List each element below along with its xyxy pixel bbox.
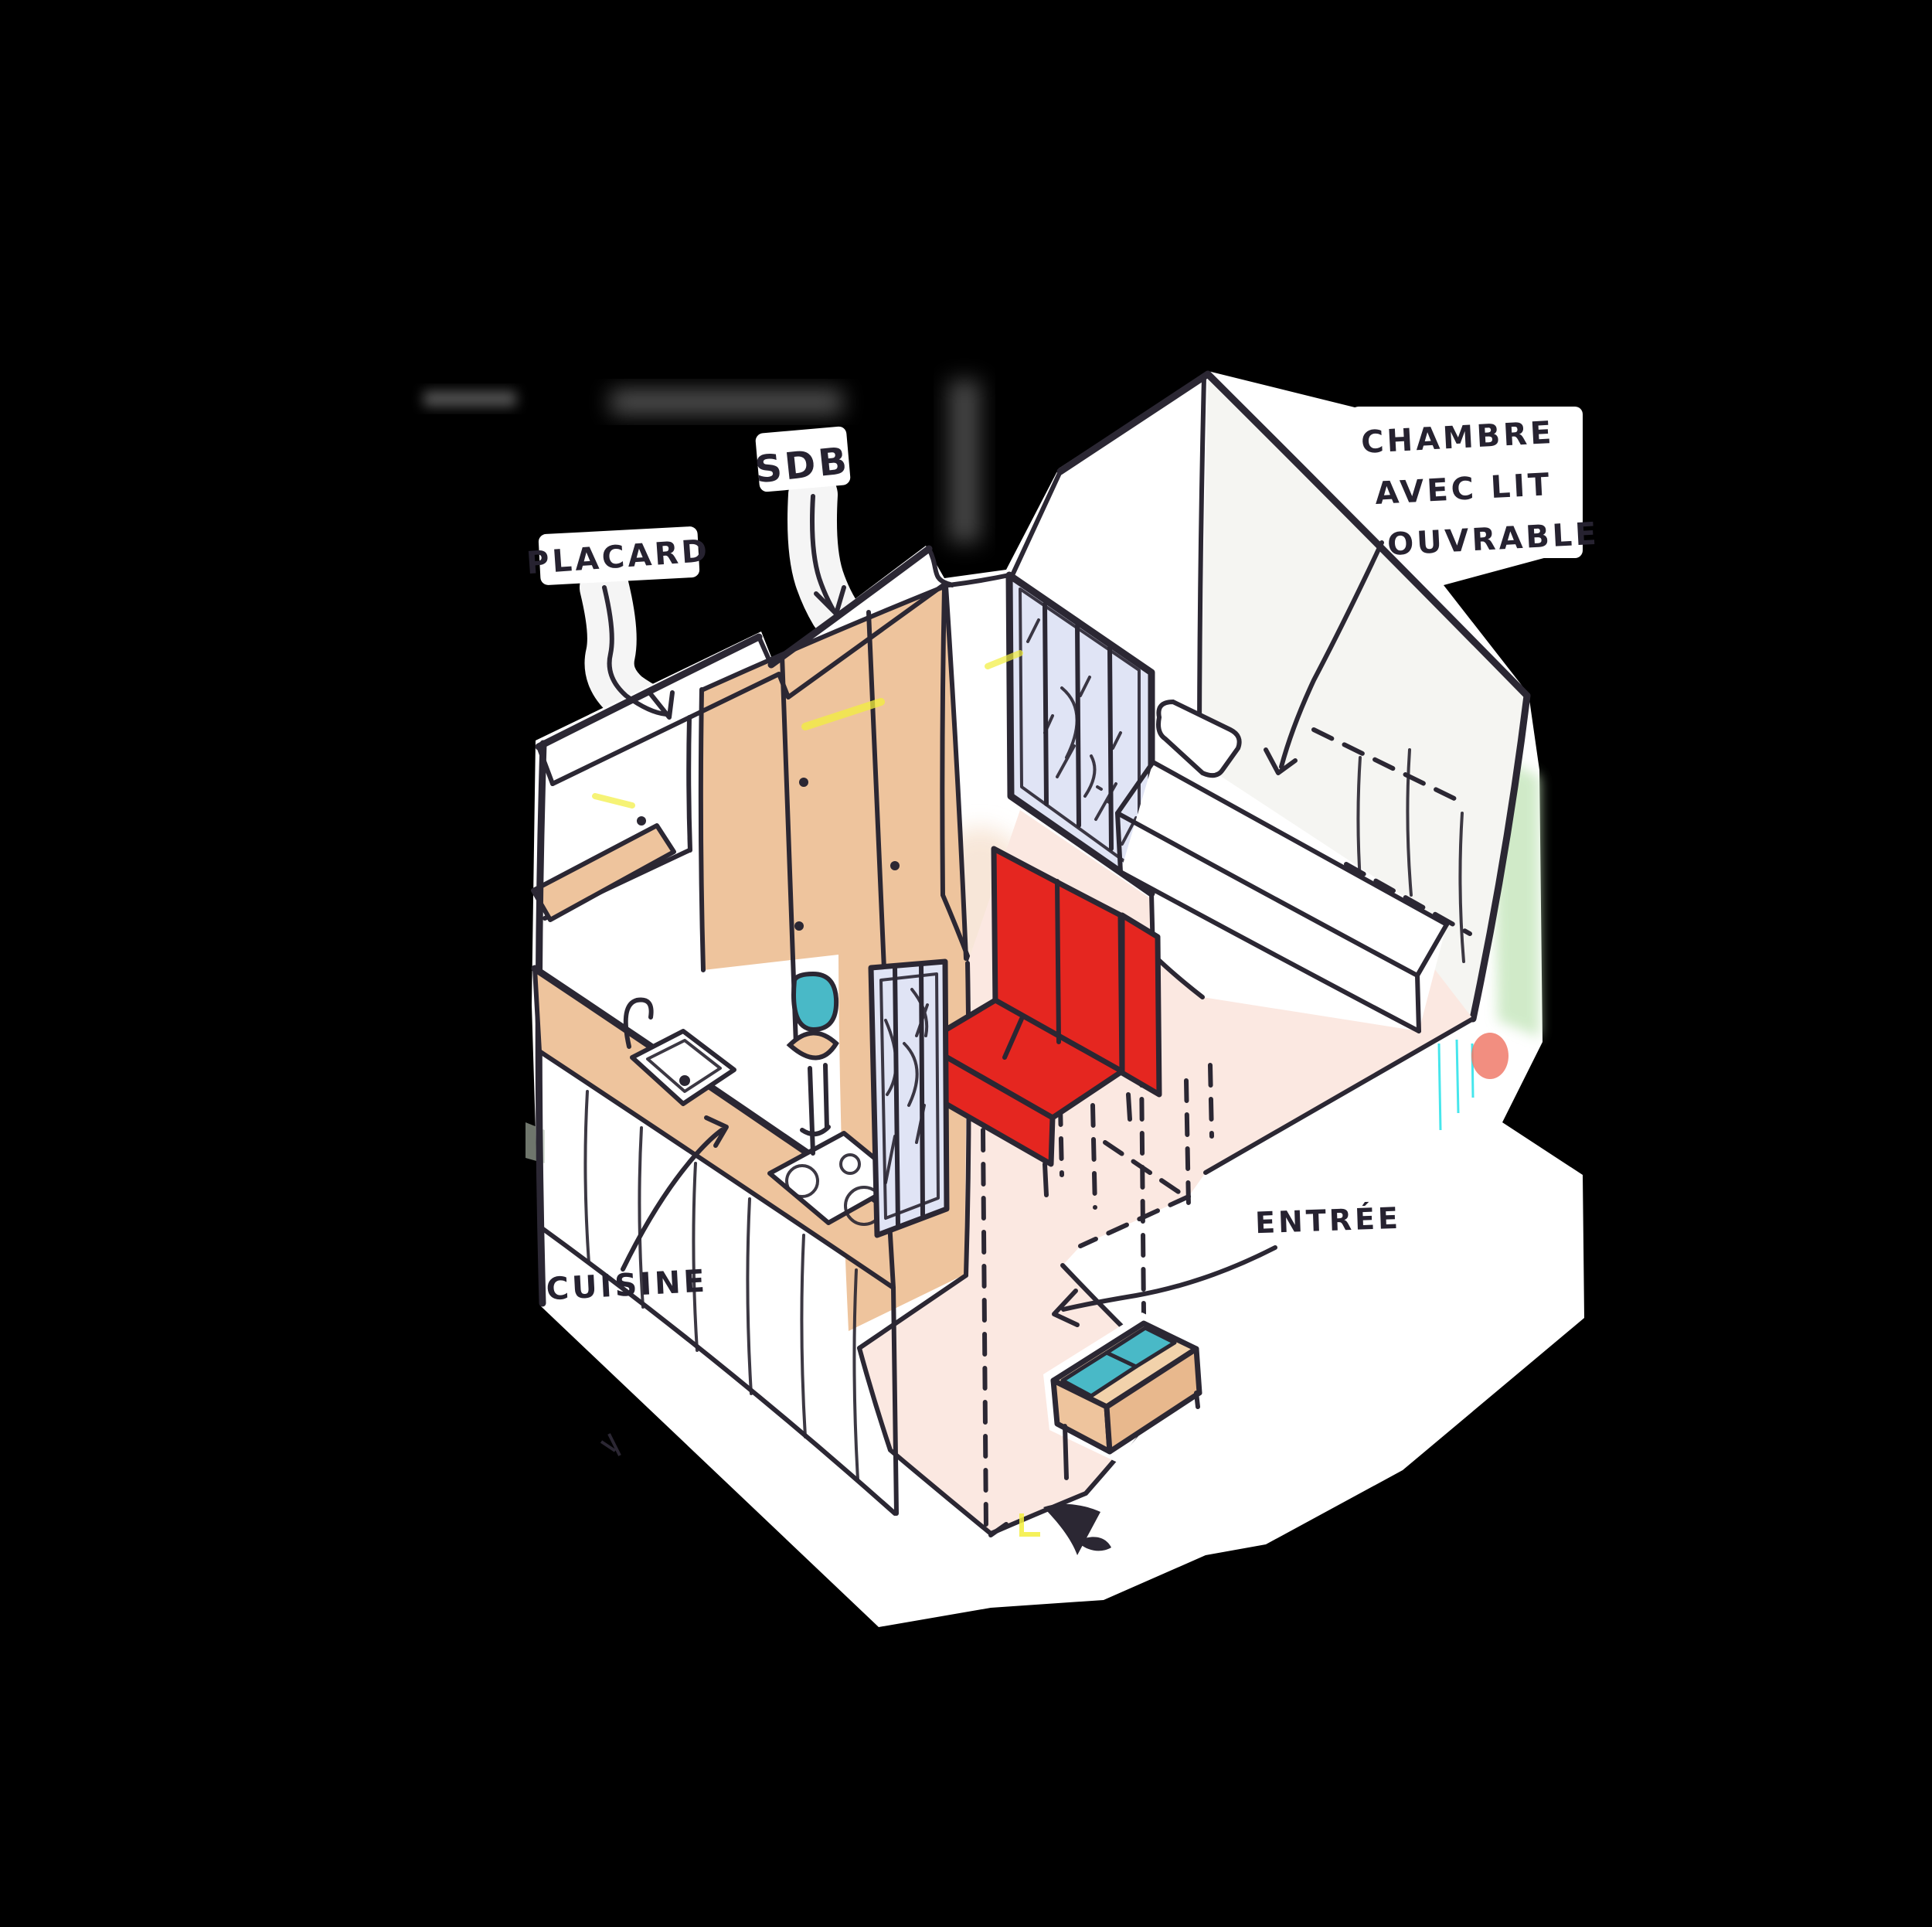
floor-dash-3 [1093, 1105, 1095, 1207]
sofa-arm [1122, 915, 1159, 1095]
sofa-back-seam [1057, 881, 1059, 1042]
door-knob-3 [890, 861, 900, 870]
door-knob-4 [637, 816, 646, 826]
glazed-door [871, 962, 947, 1235]
cabinet-front-right [893, 1288, 896, 1513]
sink-drain [679, 1075, 690, 1086]
smudge-streak-3 [949, 380, 980, 543]
closet-left-edge [701, 689, 703, 970]
smudge-streak-2 [611, 390, 842, 414]
sketch-svg: SDB PLACARD CHAMBRE AVEC LIT OUVRABLE CU… [0, 0, 1932, 1927]
label-entree: ENTRÉE [1254, 1201, 1401, 1241]
salmon-artifact [1471, 1033, 1509, 1079]
partition-side-sliver [942, 587, 944, 895]
door-knob-1 [799, 778, 808, 787]
smudge-streak-1 [423, 391, 516, 407]
door-knob-2 [794, 921, 804, 931]
stool-back [794, 974, 836, 1030]
stray-pen-mark [601, 1434, 620, 1455]
upper-cabinet-right [689, 717, 690, 850]
screenshot-stage: SDB PLACARD CHAMBRE AVEC LIT OUVRABLE CU… [0, 0, 1932, 1927]
